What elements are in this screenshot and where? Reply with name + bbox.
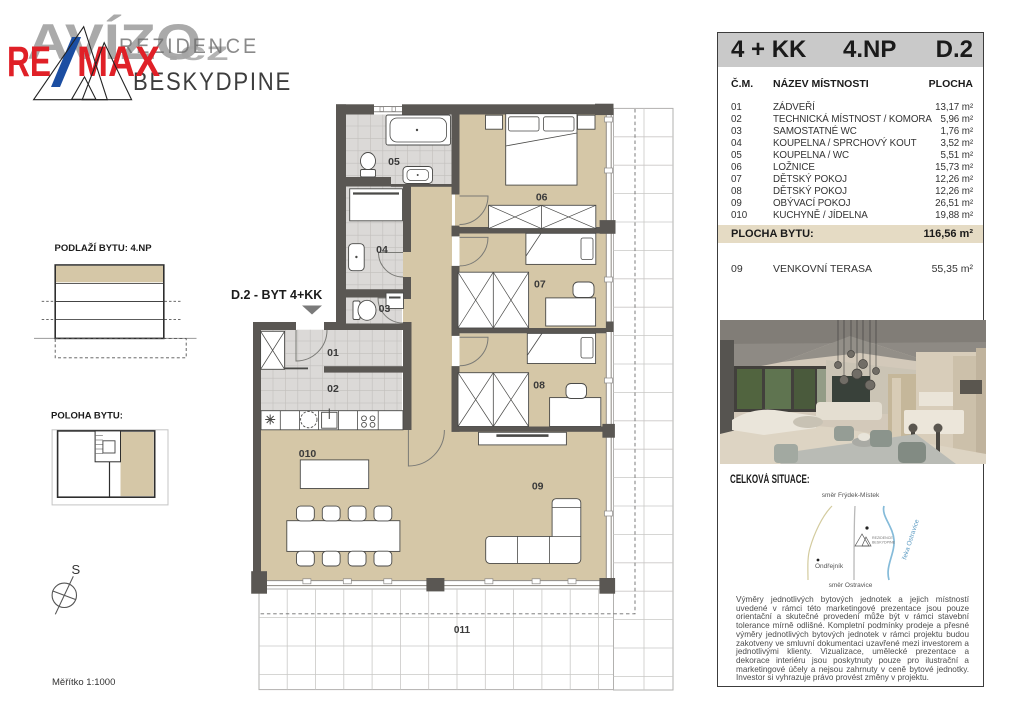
- svg-text:09: 09: [532, 481, 544, 493]
- svg-text:06: 06: [536, 192, 548, 204]
- svg-text:D.2 - BYT 4+KK: D.2 - BYT 4+KK: [231, 288, 322, 302]
- svg-text:PODLAŽÍ BYTU: 4.NP: PODLAŽÍ BYTU: 4.NP: [55, 242, 153, 254]
- svg-text:04: 04: [376, 244, 388, 256]
- svg-text:011: 011: [454, 625, 471, 636]
- svg-text:POLOHA BYTU:: POLOHA BYTU:: [51, 411, 123, 422]
- svg-text:08: 08: [533, 380, 545, 392]
- svg-text:07: 07: [534, 279, 546, 291]
- svg-text:Ondřejník: Ondřejník: [815, 563, 844, 570]
- svg-text:REZIDENCE: REZIDENCE: [872, 536, 893, 540]
- svg-text:02: 02: [327, 383, 339, 395]
- svg-text:05: 05: [388, 156, 400, 168]
- svg-text:010: 010: [299, 448, 317, 460]
- svg-text:03: 03: [379, 303, 391, 315]
- svg-text:01: 01: [327, 347, 339, 359]
- svg-text:S: S: [72, 562, 81, 577]
- svg-text:BESKYDPINE: BESKYDPINE: [872, 541, 896, 545]
- svg-text:řeka Ostravice: řeka Ostravice: [901, 518, 921, 560]
- svg-text:Měřítko 1:1000: Měřítko 1:1000: [52, 677, 115, 688]
- svg-text:RE: RE: [7, 38, 51, 86]
